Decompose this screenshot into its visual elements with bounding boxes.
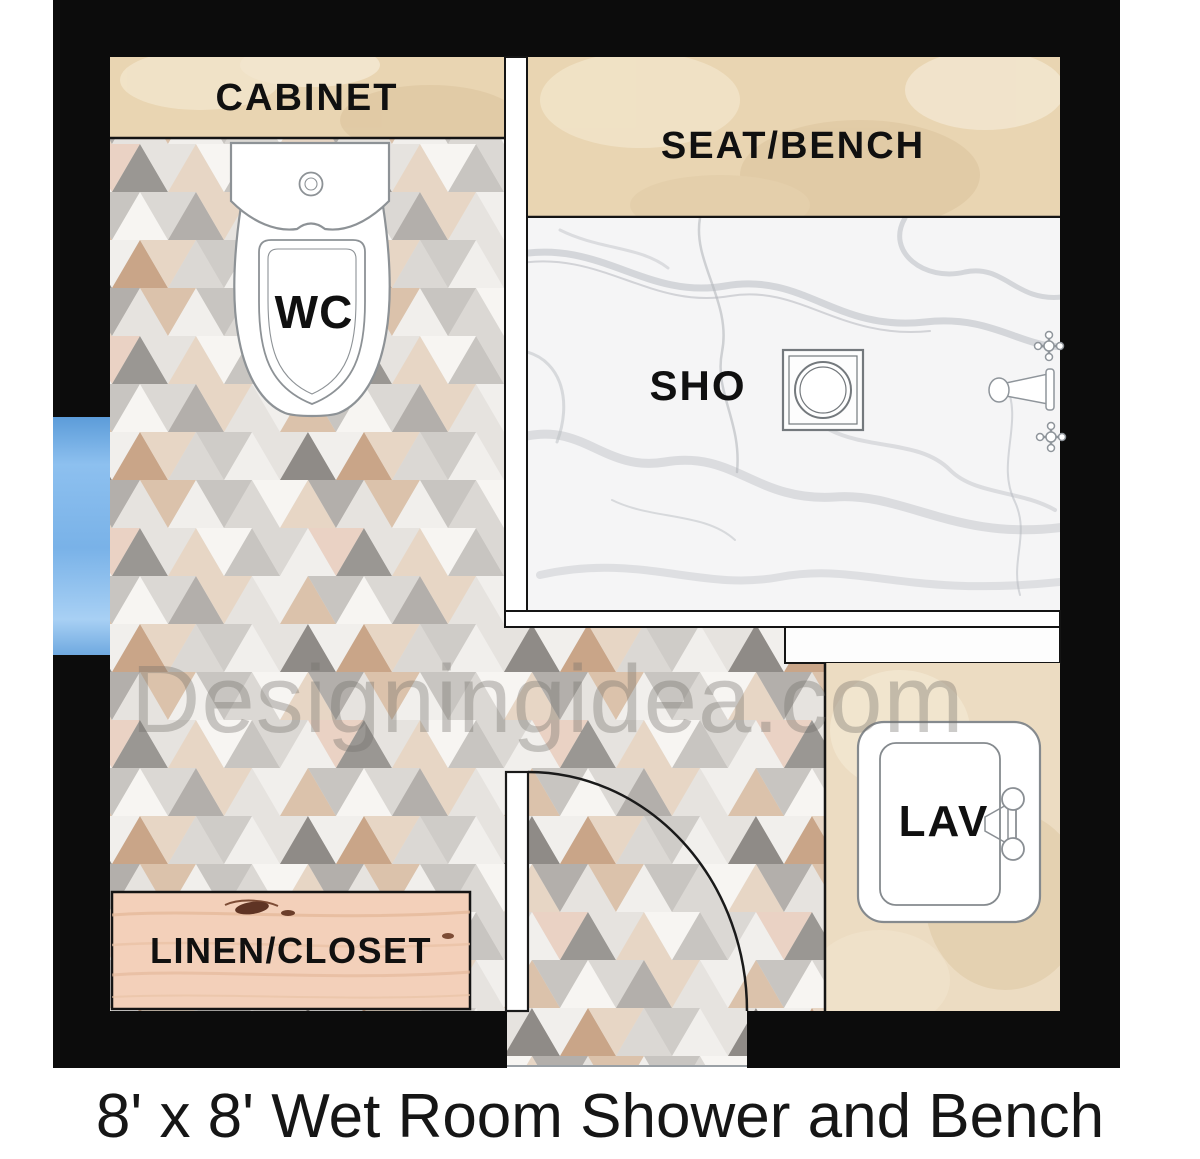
lavatory-label: LAV <box>899 800 990 844</box>
toilet-flush-button <box>300 173 323 196</box>
door-threshold-floor <box>507 1011 747 1066</box>
shower-partition-wall <box>505 57 527 611</box>
toilet-label: WC <box>275 289 354 335</box>
floor-plan-graphic <box>0 0 1200 1159</box>
wall-bottom-right <box>747 1011 1120 1068</box>
toilet-fixture <box>231 143 390 416</box>
floor-plan: Designingidea.com CABINET SEAT/BENCH SHO… <box>0 0 1200 1159</box>
plan-caption: 8' x 8' Wet Room Shower and Bench <box>0 1086 1200 1148</box>
door-leaf <box>506 772 528 1011</box>
cabinet-label: CABINET <box>216 79 399 117</box>
window <box>53 417 113 655</box>
linen-closet-label: LINEN/CLOSET <box>150 933 432 969</box>
seat-bench-label: SEAT/BENCH <box>661 127 925 165</box>
watermark: Designingidea.com <box>131 652 964 748</box>
wall-top <box>53 0 1120 57</box>
wall-right <box>1060 0 1120 1068</box>
shower-label: SHO <box>649 365 746 407</box>
shower-curb <box>505 611 1060 627</box>
shower-drain <box>783 350 863 430</box>
wall-bottom-left <box>53 1011 507 1068</box>
